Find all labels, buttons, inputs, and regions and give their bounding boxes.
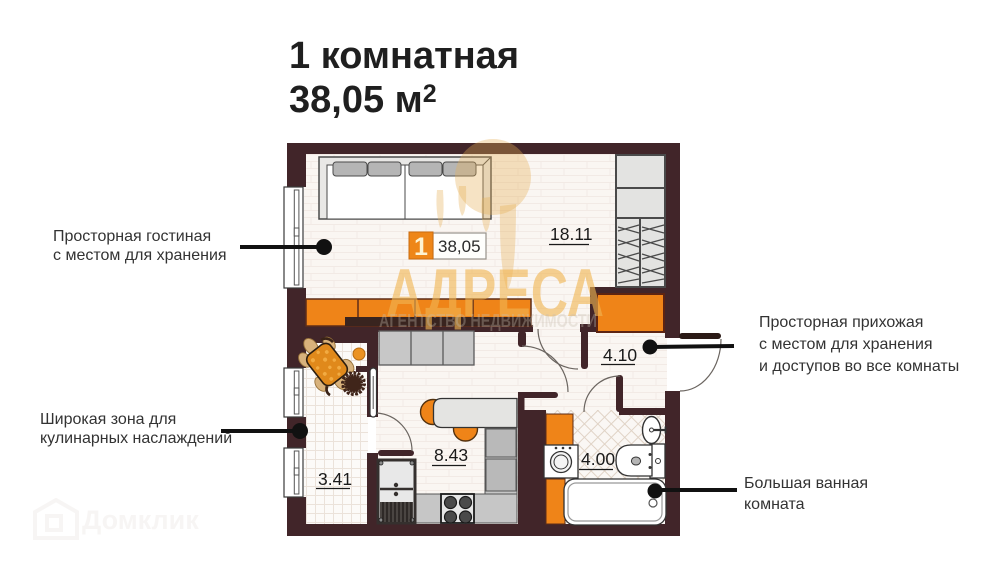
svg-text:1: 1 [414, 233, 428, 261]
svg-text:3.41: 3.41 [318, 469, 352, 489]
svg-text:18.11: 18.11 [550, 224, 593, 244]
svg-text:8.43: 8.43 [434, 445, 468, 465]
svg-text:38,05: 38,05 [438, 237, 481, 256]
svg-text:АГЕНТСТВО НЕДВИЖИМОСТИ: АГЕНТСТВО НЕДВИЖИМОСТИ [379, 311, 597, 331]
svg-text:4.10: 4.10 [603, 345, 637, 365]
svg-text:4.00: 4.00 [581, 449, 615, 469]
